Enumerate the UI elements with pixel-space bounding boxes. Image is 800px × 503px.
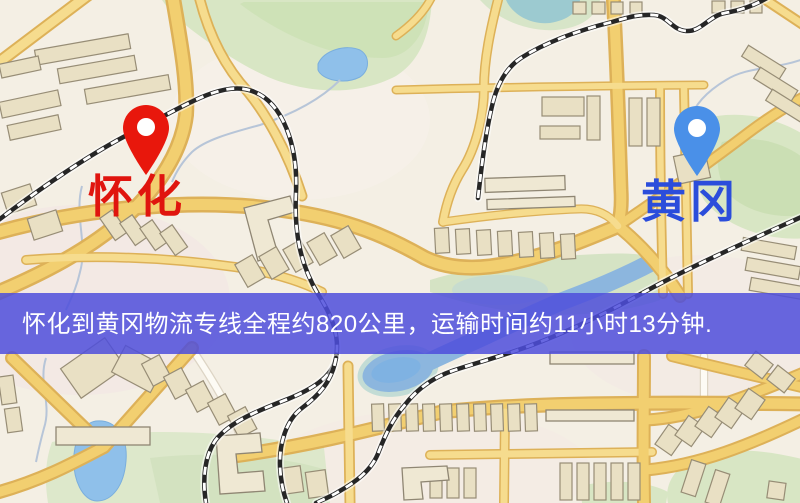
origin-city-label: 怀化 bbox=[88, 174, 186, 219]
route-map: 怀化 黄冈 怀化到黄冈物流专线全程约820公里，运输时间约11小时13分钟. bbox=[0, 0, 800, 503]
destination-pin-icon bbox=[672, 105, 722, 178]
destination-city-label: 黄冈 bbox=[641, 179, 739, 224]
route-info-banner: 怀化到黄冈物流专线全程约820公里，运输时间约11小时13分钟. bbox=[0, 293, 800, 354]
origin-pin-icon bbox=[121, 104, 171, 177]
route-info-text: 怀化到黄冈物流专线全程约820公里，运输时间约11小时13分钟. bbox=[22, 304, 712, 339]
map-canvas bbox=[0, 0, 800, 503]
